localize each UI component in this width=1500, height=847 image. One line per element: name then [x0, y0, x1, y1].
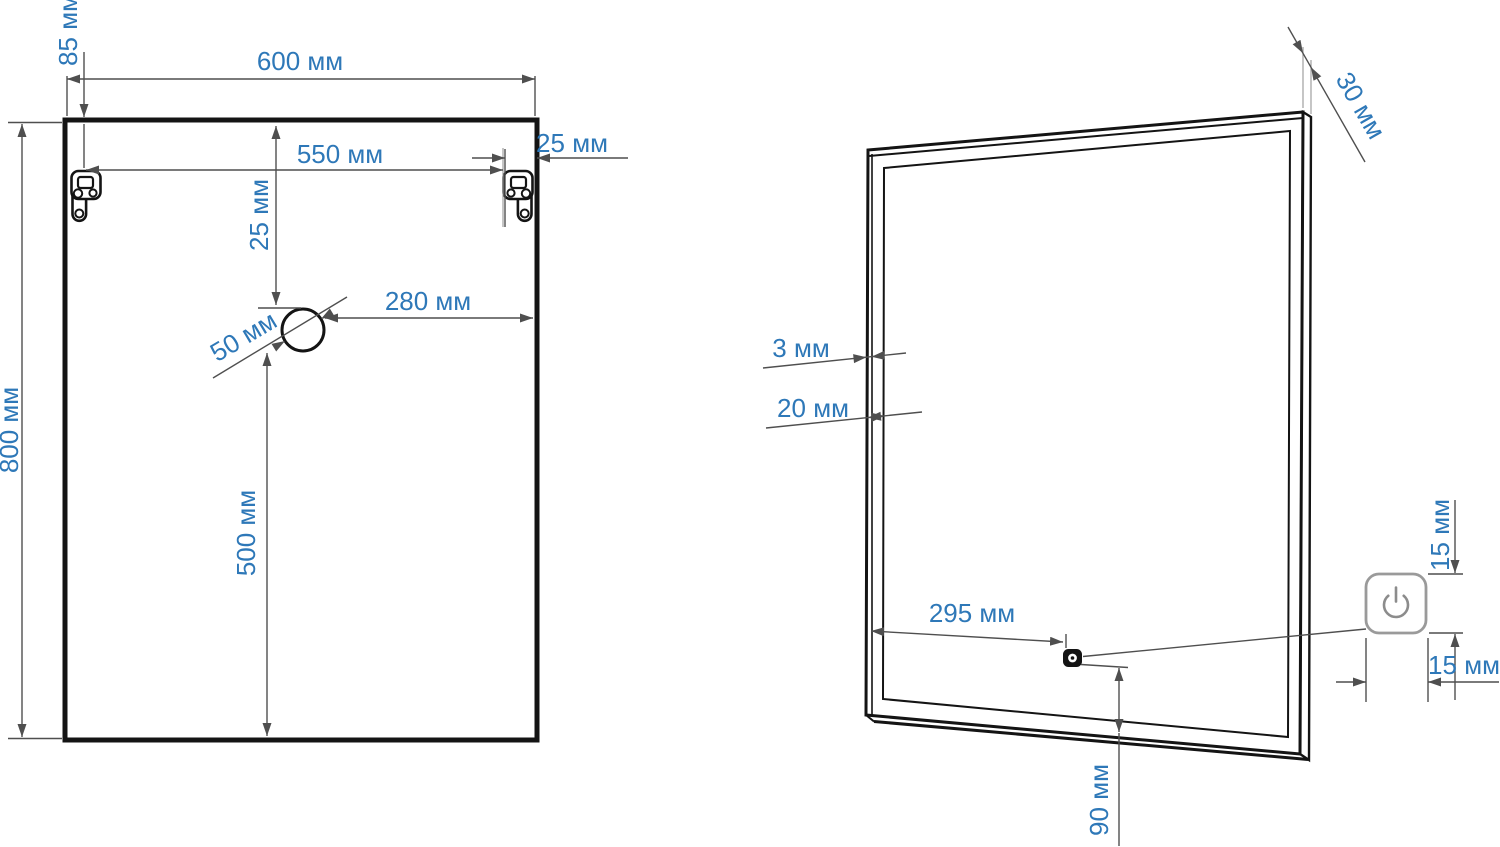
dim-glass-thickness-label: 3 мм: [772, 333, 829, 363]
dim-width-label: 600 мм: [257, 46, 343, 76]
dim-depth-label: 30 мм: [1330, 67, 1392, 144]
touch-sensor: [1063, 649, 1082, 667]
dim-button-height-label: 15 мм: [1425, 499, 1455, 571]
technical-drawing: 600 мм 85 мм 800 мм 550 мм 25 мм: [0, 0, 1500, 847]
dim-switch-bottom-offset-label: 90 мм: [1084, 764, 1114, 836]
dim-hole-side-offset-label: 280 мм: [385, 286, 471, 316]
dim-hanger-top-offset-label: 85 мм: [53, 0, 83, 66]
dim-frame-width-label: 20 мм: [777, 393, 849, 423]
dim-height-label: 800 мм: [0, 387, 24, 473]
dim-hole-bottom-offset-label: 500 мм: [231, 490, 261, 576]
mirror-perspective-body: [866, 112, 1311, 760]
dim-width: 600 мм: [67, 46, 535, 116]
drawing-svg: 600 мм 85 мм 800 мм 550 мм 25 мм: [0, 0, 1500, 847]
mirror-back-panel: [65, 120, 537, 740]
dim-height: 800 мм: [0, 123, 62, 739]
dim-hanger-side-offset-label: 25 мм: [536, 128, 608, 158]
dim-button-width-label: 15 мм: [1428, 650, 1500, 680]
power-button-detail: [1366, 574, 1426, 633]
dim-hanger-spacing-label: 550 мм: [297, 139, 383, 169]
side-view: 30 мм 3 мм 20 мм 295 мм 90 мм: [763, 27, 1500, 846]
dim-hole-top-offset-label: 25 мм: [244, 179, 274, 251]
dim-switch-side-offset-label: 295 мм: [929, 598, 1015, 628]
front-view: 600 мм 85 мм 800 мм 550 мм 25 мм: [0, 0, 628, 740]
dim-button-width: 15 мм: [1336, 638, 1500, 702]
power-button: [1366, 574, 1426, 633]
